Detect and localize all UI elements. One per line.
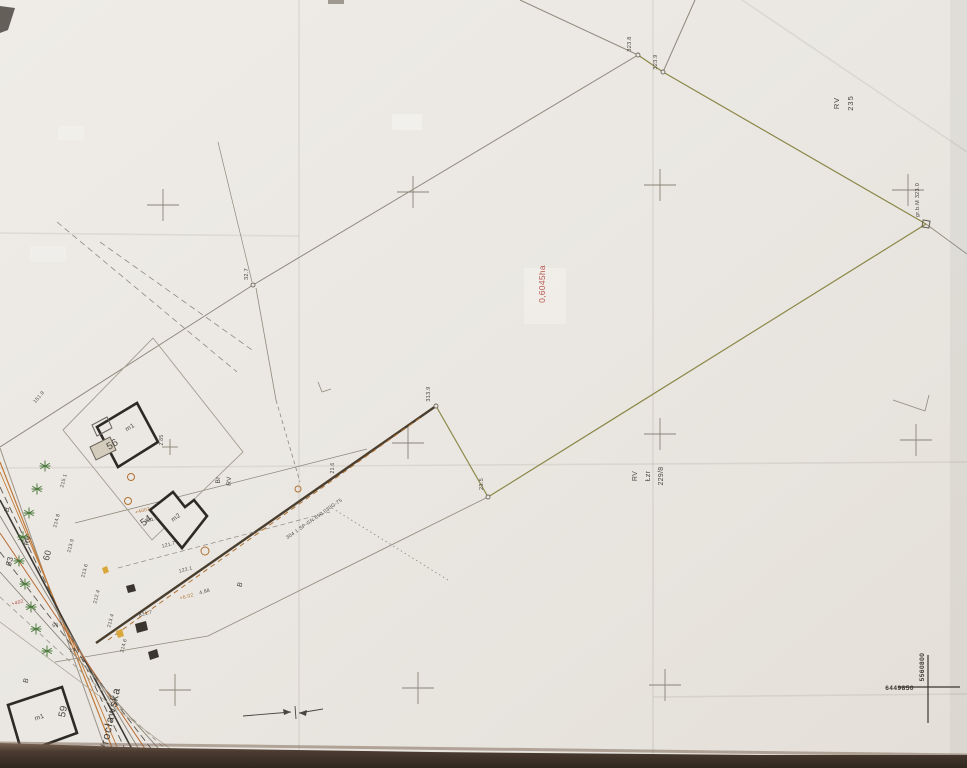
photo-top-artifact: [328, 0, 344, 4]
boundary-point-icon: [486, 495, 490, 499]
boundary-point-icon: [636, 53, 640, 57]
boundary-note: gr.b.M 323.0: [915, 183, 921, 217]
boundary-point-icon: [251, 283, 255, 287]
paper-bright-patch: [30, 246, 66, 262]
map-label: 21.6: [330, 463, 336, 474]
parcel-area-label: 0,6045ha: [537, 265, 547, 303]
paper-edge-shade: [950, 0, 967, 768]
coordinate-label-x: 6449850: [885, 685, 914, 692]
map-label: 2.85: [159, 435, 165, 446]
landuse-br: Br: [215, 476, 222, 484]
point-elev-5: 23.5: [479, 478, 485, 490]
paper-background: [0, 0, 967, 768]
point-elev-3: 32.7: [244, 268, 250, 280]
landuse-rv-235: RV: [832, 97, 841, 109]
boundary-point-icon: [661, 70, 665, 74]
plot-number-235: 235: [846, 95, 855, 111]
coordinate-label-y: 5560800: [919, 653, 926, 682]
landuse-lzr-229: Łzr: [645, 470, 652, 481]
plot-number-229-8: 229/8: [658, 466, 665, 485]
point-elev-1: 323.8: [627, 36, 633, 51]
point-elev-2: 323.9: [653, 54, 659, 69]
scanned-map-photo: 64498505560800RV2350,6045haRVŁzr229/8323…: [0, 0, 967, 768]
paper-bright-patch: [392, 114, 422, 130]
point-elev-4: 313.9: [426, 386, 432, 401]
boundary-point-icon: [434, 404, 438, 408]
cadastral-map-scan: 64498505560800RV2350,6045haRVŁzr229/8323…: [0, 0, 967, 768]
landuse-rv-229: RV: [632, 471, 639, 481]
landuse-rv-mid: RV: [226, 476, 233, 486]
paper-bright-patch: [58, 126, 84, 140]
